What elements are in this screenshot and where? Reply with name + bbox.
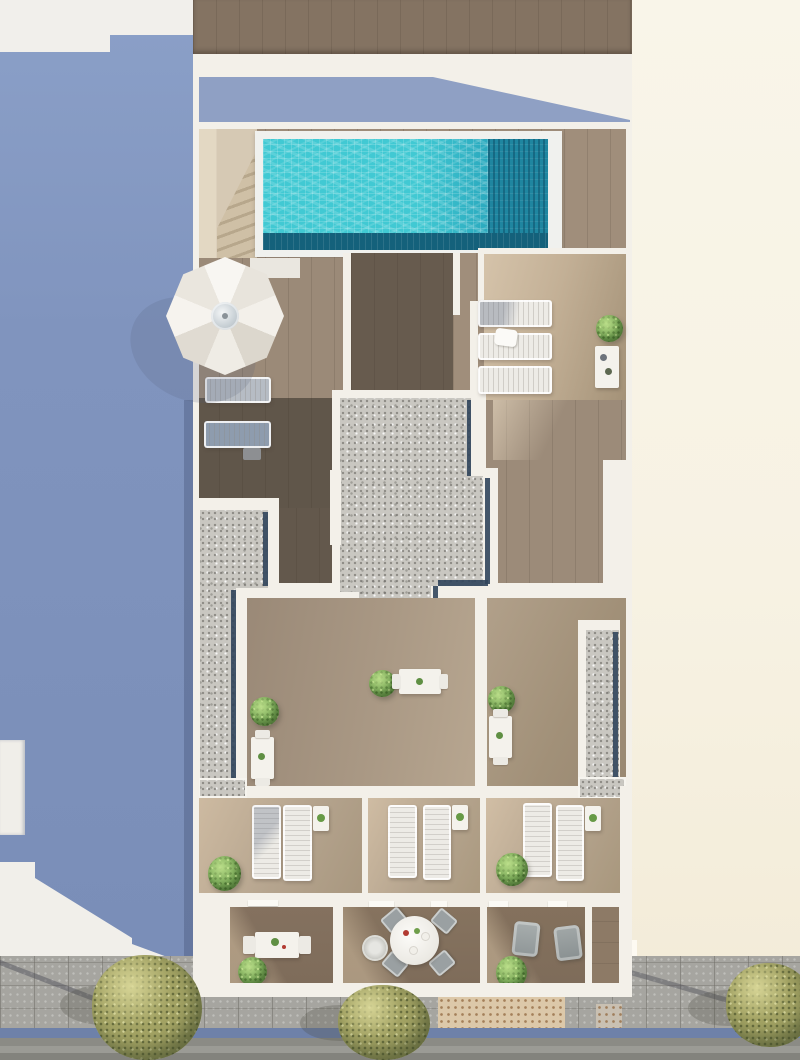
shrub bbox=[208, 856, 241, 891]
balcony-wall bbox=[480, 905, 487, 985]
left-shadow-roof bbox=[0, 0, 193, 958]
planter-box bbox=[198, 778, 247, 798]
sun-lounger bbox=[478, 300, 552, 327]
shaded-deck-lower bbox=[273, 508, 333, 587]
side-table bbox=[595, 346, 619, 388]
building-roof bbox=[193, 0, 632, 997]
shrub bbox=[250, 697, 279, 726]
sun-lounger bbox=[283, 805, 312, 881]
lounger-terraces-top-band bbox=[193, 786, 632, 798]
gravel-center-notch bbox=[330, 470, 341, 545]
top-wood-deck bbox=[193, 0, 632, 54]
street-tree bbox=[726, 963, 800, 1047]
parasol-finial bbox=[222, 313, 228, 319]
door-sill bbox=[248, 900, 278, 906]
sun-lounger bbox=[252, 805, 281, 879]
street-tree bbox=[338, 985, 430, 1060]
round-rug bbox=[362, 935, 388, 961]
chair bbox=[243, 936, 255, 954]
table-setting-plate bbox=[421, 932, 430, 941]
building-shadow-band bbox=[193, 75, 630, 122]
skylight-edge bbox=[263, 512, 268, 586]
round-dining-table bbox=[390, 916, 439, 965]
skylight-edge bbox=[438, 580, 488, 586]
potted-plant bbox=[496, 732, 503, 739]
chair bbox=[255, 730, 270, 738]
table-setting-red bbox=[403, 930, 409, 936]
balcony-floor-small bbox=[592, 907, 619, 985]
terrace-party-wall bbox=[362, 786, 368, 906]
towel bbox=[494, 328, 518, 348]
sun-lounger bbox=[388, 805, 417, 878]
potted-plant bbox=[271, 938, 279, 946]
balcony-wall bbox=[333, 905, 343, 985]
sun-lounger bbox=[556, 805, 584, 881]
shrub bbox=[238, 957, 267, 986]
terrace-party-wall bbox=[480, 786, 486, 906]
building-left-edge-wall bbox=[193, 54, 199, 995]
chair bbox=[493, 757, 508, 765]
red-accent bbox=[282, 945, 286, 949]
potted-plant bbox=[589, 814, 597, 822]
potted-plant bbox=[317, 814, 325, 822]
table-setting-green bbox=[414, 928, 420, 934]
upper-white-band bbox=[193, 54, 632, 77]
shrub bbox=[596, 315, 623, 342]
potted-plant bbox=[258, 753, 265, 760]
lounger-headboard bbox=[470, 301, 478, 394]
left-roof-edge-shade bbox=[184, 400, 193, 958]
table-setting-plate bbox=[409, 946, 418, 955]
potted-plant bbox=[416, 678, 423, 685]
table-item bbox=[605, 368, 612, 375]
chair bbox=[299, 936, 311, 954]
street-tree bbox=[92, 955, 202, 1060]
sun-lounger bbox=[478, 366, 552, 394]
stair-shaft-dark-roof bbox=[351, 253, 453, 400]
armchair bbox=[511, 921, 540, 958]
balcony-wall bbox=[585, 905, 592, 985]
shaft-wall-right bbox=[453, 253, 460, 315]
tactile-paving bbox=[438, 997, 565, 1028]
chair bbox=[493, 709, 508, 717]
chair bbox=[255, 778, 270, 786]
shaded-deck bbox=[196, 398, 333, 508]
skylight-edge bbox=[485, 478, 490, 584]
sun-lounger bbox=[423, 805, 451, 880]
deck-item bbox=[243, 448, 261, 460]
left-roof-white-block bbox=[0, 740, 25, 835]
building-right-edge-wall bbox=[626, 129, 632, 997]
terrace-mid-left-floor bbox=[247, 598, 475, 790]
mid-right-sun-patch bbox=[493, 400, 573, 460]
skylight-edge bbox=[613, 632, 618, 782]
shrub bbox=[496, 853, 528, 886]
chair bbox=[392, 674, 400, 689]
chair bbox=[440, 674, 448, 689]
potted-plant bbox=[456, 813, 464, 821]
skylight-edge bbox=[231, 590, 236, 786]
sun-lounger bbox=[204, 421, 271, 448]
shaft-wall-left bbox=[343, 253, 351, 400]
table-item bbox=[600, 354, 607, 361]
right-cream-wall bbox=[632, 0, 800, 962]
tactile-paving-small bbox=[596, 1004, 622, 1028]
terrace-divider-wall bbox=[475, 590, 487, 800]
armchair bbox=[553, 925, 583, 962]
planter-box bbox=[578, 777, 626, 799]
skylight-edge bbox=[467, 400, 471, 476]
aerial-architectural-render bbox=[0, 0, 800, 1060]
